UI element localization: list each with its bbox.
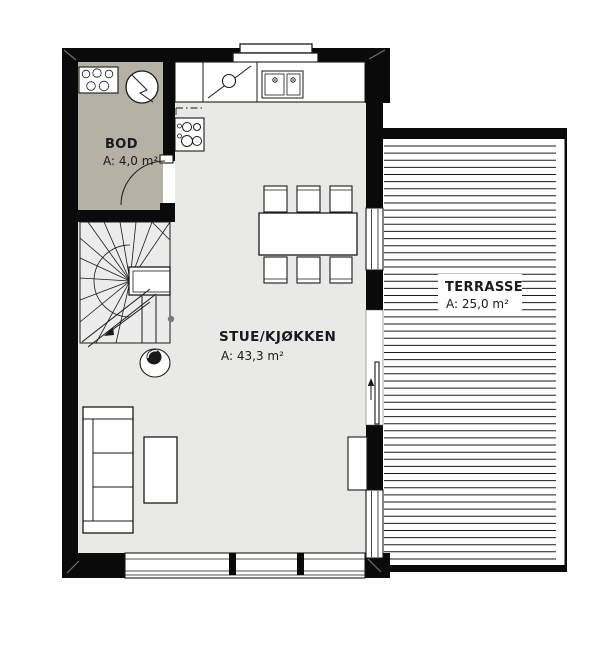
wall-right-seg3 <box>366 425 383 490</box>
room-area-bod: A: 4,0 m² <box>103 154 158 168</box>
round-chair-icon <box>140 349 170 377</box>
room-area-stue: A: 43,3 m² <box>221 349 284 363</box>
sliding-door-icon <box>366 310 383 425</box>
terrace-top-edge <box>383 128 566 139</box>
floor-plan-drawing: BOD A: 4,0 m² STUE/KJØKKEN A: 43,3 m² TE… <box>0 0 614 654</box>
wall-bod-right-upper <box>163 62 175 161</box>
sliding-door-leaf <box>375 362 379 424</box>
room-area-terrasse: A: 25,0 m² <box>446 297 509 311</box>
wall-left <box>62 48 78 578</box>
window-icon <box>240 44 312 53</box>
floor-plan: BOD A: 4,0 m² STUE/KJØKKEN A: 43,3 m² TE… <box>0 0 614 654</box>
room-label-terrasse: TERRASSE <box>445 280 523 295</box>
wall-bottom-left-block <box>62 553 125 578</box>
window-icon <box>125 553 365 578</box>
dining-set <box>259 186 357 283</box>
coffee-table-icon <box>144 437 177 503</box>
terrace <box>383 128 567 572</box>
dining-table-icon <box>259 213 357 255</box>
terrace-bottom-edge <box>383 565 567 572</box>
window-right-upper <box>366 208 383 270</box>
window-bottom-band <box>125 553 365 578</box>
window-right-lower <box>366 490 383 558</box>
door-jamb-bottom <box>160 203 175 216</box>
door-jamb-top <box>160 155 173 163</box>
sofa-icon <box>83 407 133 533</box>
wall-right-pier <box>365 48 390 103</box>
terrace-decking-icon <box>384 146 556 559</box>
terrace-right-edge <box>565 128 568 572</box>
handrail-dot <box>168 316 174 322</box>
window-icon <box>366 490 383 558</box>
window-mullion <box>229 553 236 575</box>
room-label-stue: STUE/KJØKKEN <box>219 329 336 345</box>
wall-right-seg2 <box>366 270 383 310</box>
storage-hob-icon <box>79 67 118 93</box>
window-mullion <box>297 553 304 575</box>
room-label-bod: BOD <box>105 137 138 152</box>
wall-top <box>62 48 390 62</box>
wall-right-seg1 <box>366 103 383 208</box>
tv-bench-icon <box>348 437 367 490</box>
kitchen-counter <box>175 62 365 102</box>
washing-machine-icon <box>126 71 158 103</box>
window-icon <box>366 208 383 270</box>
winder-staircase-icon <box>80 222 174 347</box>
door-opening <box>163 161 175 203</box>
